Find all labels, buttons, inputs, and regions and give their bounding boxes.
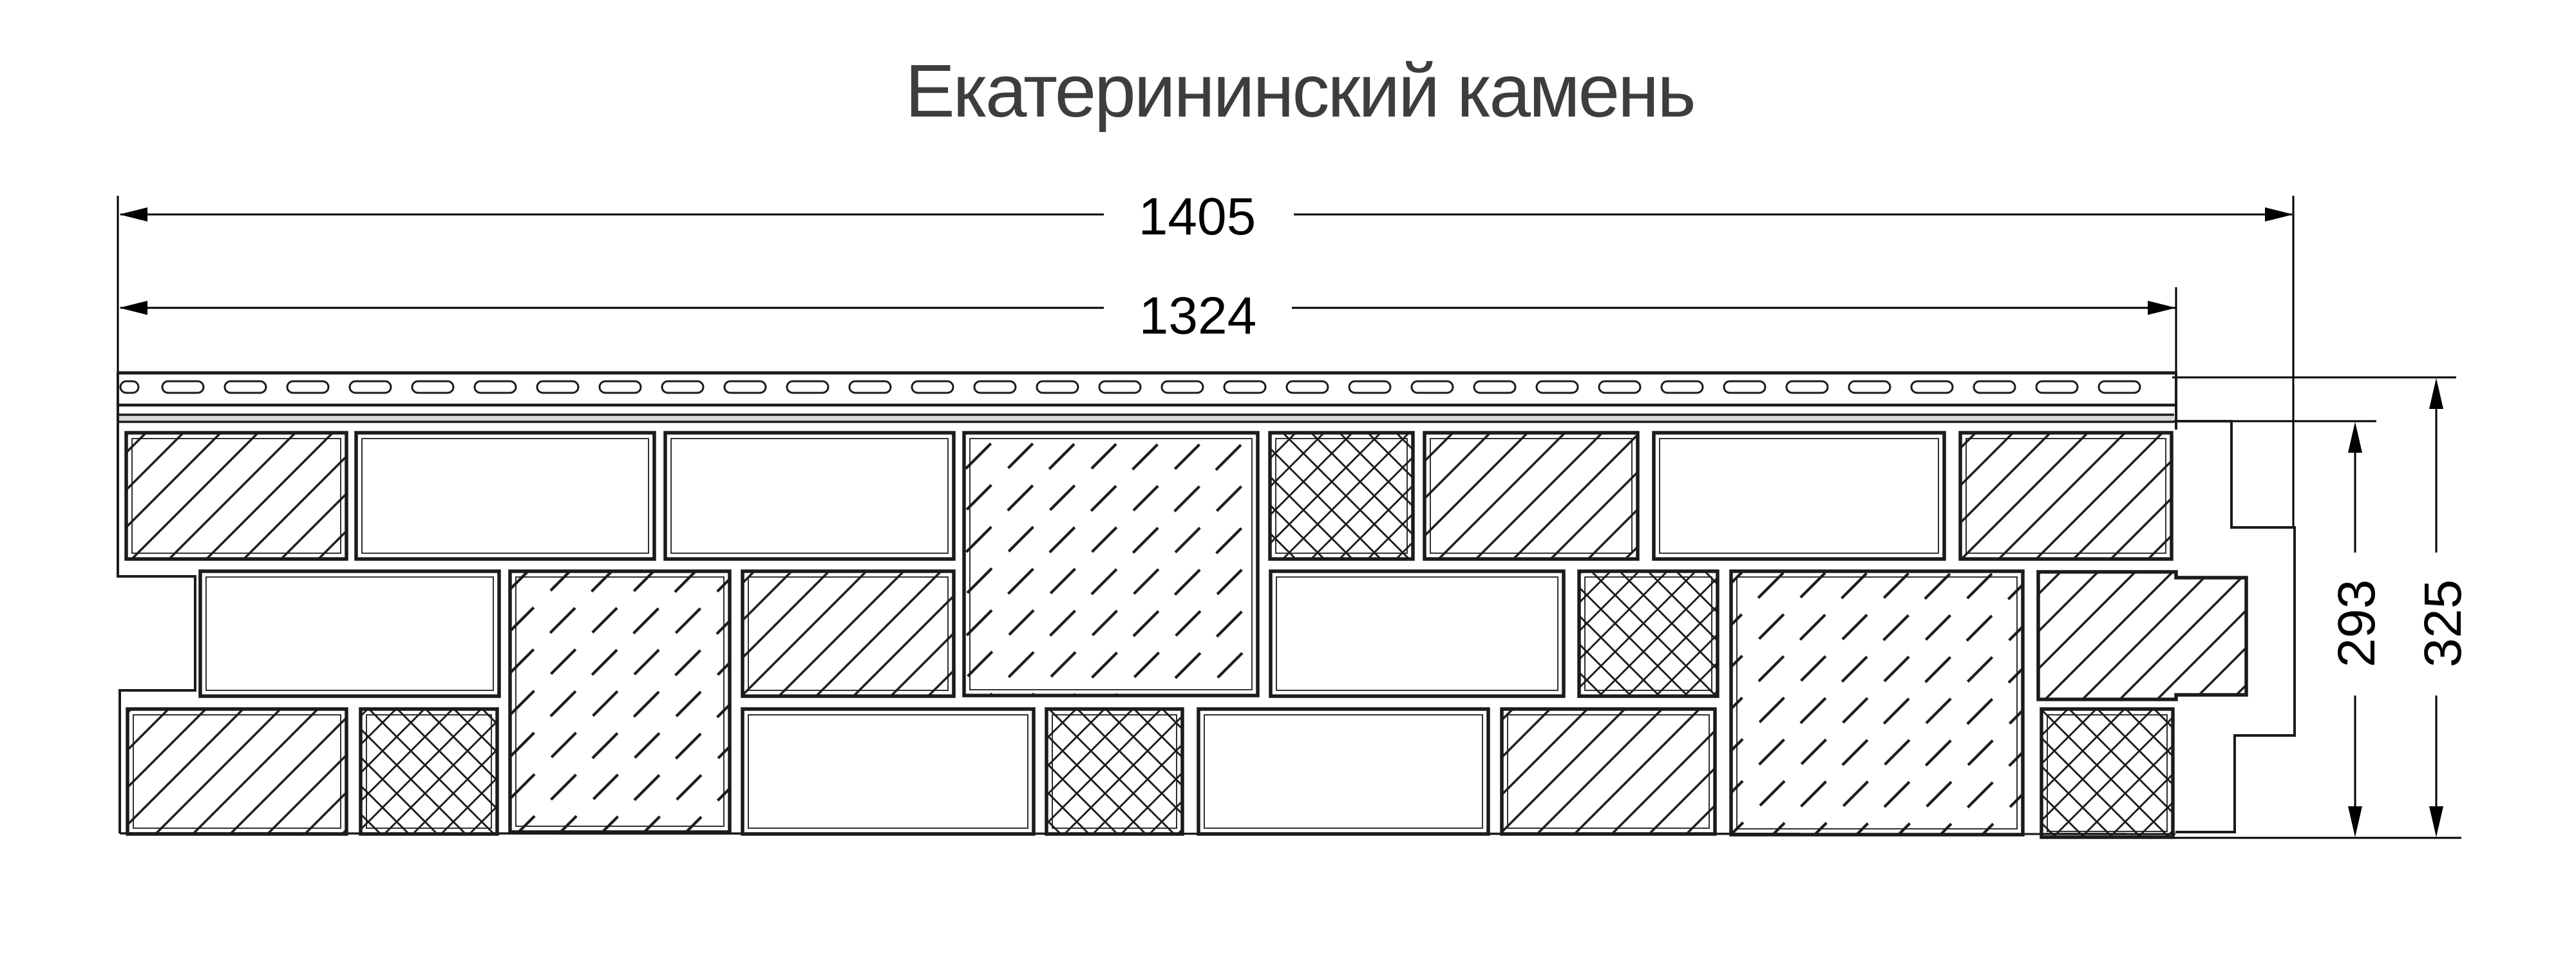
svg-text:293: 293	[2327, 580, 2386, 668]
svg-text:325: 325	[2414, 580, 2472, 668]
svg-text:1324: 1324	[1139, 287, 1256, 345]
svg-text:1405: 1405	[1139, 187, 1256, 246]
svg-text:Екатерининский камень: Екатерининский камень	[905, 49, 1694, 133]
